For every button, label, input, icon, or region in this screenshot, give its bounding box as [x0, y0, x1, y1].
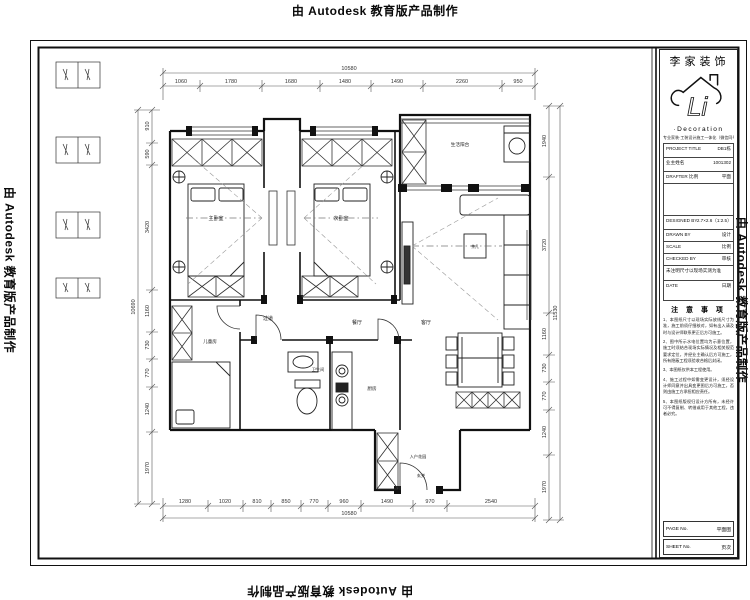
dim-right-seg: 1240	[542, 426, 548, 438]
field-label: 业主姓名	[666, 160, 684, 166]
company-logo: Li	[663, 71, 734, 125]
field-row: 业主姓名1001302	[664, 158, 733, 172]
company-tagline: 专业家装·工装设计施工一体化（微信同号）	[663, 135, 734, 141]
footer-label: PAGE No.	[666, 527, 688, 532]
dim-left-total: 10690	[131, 299, 137, 314]
field-label: DRAWN BY	[666, 232, 691, 237]
field-label: DATE	[666, 283, 678, 288]
title-block-footer: PAGE No.平面图 SHEET No.页次	[663, 519, 734, 555]
dim-bottom-total: 10580	[341, 511, 356, 517]
footer-value: 页次	[721, 544, 731, 551]
footer-label: SHEET No.	[666, 545, 691, 550]
room-labels: 主卧室 次卧室 生活阳台 过道 餐厅 客厅 卫生间 厨房 儿童房 入户花园 玄关…	[203, 141, 479, 479]
dim-bottom-seg: 1280	[179, 499, 191, 505]
dim-left-seg: 1160	[145, 305, 151, 317]
note-item: 5、本图纸版权归设计方所有，未经许可不得复制、转借或用于其他工程，违者必究。	[663, 399, 734, 418]
dim-bottom-seg: 960	[339, 499, 348, 505]
field-row: PROJECT TITLEDB1栋	[664, 144, 733, 158]
room-label-dining: 餐厅	[352, 319, 362, 326]
dim-right-seg: 770	[542, 391, 548, 400]
dim-right-seg: 1970	[542, 481, 548, 493]
furniture	[172, 126, 530, 430]
dim-right-seg: 1940	[542, 135, 548, 147]
dim-bottom-seg: 1020	[219, 499, 231, 505]
dim-top-seg: 1480	[339, 79, 351, 85]
dim-bottom-seg: 770	[309, 499, 318, 505]
room-label-balcony: 生活阳台	[451, 141, 470, 148]
field-value: 1001302	[713, 160, 731, 165]
note-item: 1、本图纸尺寸以现场实际放线尺寸为准，施工前须仔细核对，如有出入请及时与设计师联…	[663, 317, 734, 336]
room-label-bathroom: 卫生间	[312, 366, 325, 373]
company-name: 李家装饰	[665, 53, 734, 69]
dim-left-seg: 730	[145, 340, 151, 349]
field-label: DESIGNED BY	[666, 218, 697, 223]
dim-top-seg: 2260	[456, 79, 468, 85]
dim-top-seg: 1060	[175, 79, 187, 85]
dim-bottom-seg: 1490	[381, 499, 393, 505]
field-value: 审核	[722, 256, 731, 262]
dimension-lines	[134, 68, 564, 523]
dim-left-seg: 770	[145, 368, 151, 377]
dim-bottom-seg: 810	[252, 499, 261, 505]
footer-row: PAGE No.平面图	[663, 521, 734, 537]
exterior-walls	[170, 115, 530, 490]
dim-left-seg: 1970	[145, 462, 151, 474]
dashed-lines	[186, 154, 502, 320]
dim-top-seg: 950	[513, 79, 522, 85]
dim-left-seg: 590	[145, 149, 151, 158]
title-block: 李家装饰 Li ·Decoration 专业家装·工装设计施工一体化（微信同号）…	[659, 49, 738, 558]
cad-plot-page: 由 Autodesk 教育版产品制作 由 Autodesk 教育版产品制作 由 …	[0, 0, 750, 600]
room-label-entry-garden: 入户花园	[410, 453, 427, 460]
dim-bottom-seg: 970	[425, 499, 434, 505]
field-value: 平面	[722, 174, 731, 180]
note-item: 3、本图纸仅供本工程使用。	[663, 367, 734, 373]
dim-top-total: 10580	[341, 66, 356, 72]
field-value: 2.7×2.6（1:2.5）	[697, 218, 731, 224]
dim-top-seg: 1680	[285, 79, 297, 85]
field-row: DRAFTER 比例平面	[664, 172, 733, 184]
dim-right-seg: 1160	[542, 328, 548, 340]
hatched-cabinets	[172, 120, 520, 489]
title-block-fields: PROJECT TITLEDB1栋 业主姓名1001302 DRAFTER 比例…	[663, 143, 734, 301]
room-label-second-bedroom: 次卧室	[333, 215, 348, 222]
room-label-living: 客厅	[421, 319, 431, 326]
dim-top-seg: 1780	[225, 79, 237, 85]
margin-revision-boxes	[56, 62, 100, 298]
floor-plan-canvas: 主卧室 次卧室 生活阳台 过道 餐厅 客厅 卫生间 厨房 儿童房 入户花园 玄关…	[0, 0, 750, 600]
note-item: 4、施工过程中如需变更设计，须经设计师同意并出具变更图后方可施工，否则由施工方承…	[663, 377, 734, 396]
dim-top-seg: 1490	[391, 79, 403, 85]
field-row: DESIGNED BY2.7×2.6（1:2.5）	[664, 216, 733, 230]
field-label: DRAFTER 比例	[666, 174, 698, 180]
dim-left-seg: 910	[145, 121, 151, 130]
field-value: 日期	[722, 283, 731, 289]
dim-bottom-seg: 2540	[485, 499, 497, 505]
field-row: SCALE比例	[664, 242, 733, 254]
ceiling-lamp-icon	[173, 171, 393, 273]
field-value: DB1栋	[717, 146, 731, 152]
room-label-foyer: 玄关	[417, 472, 425, 479]
room-label-master-bedroom: 主卧室	[208, 215, 223, 222]
field-label: 未注明尺寸以现场实测为准	[666, 268, 721, 274]
dim-bottom-seg: 850	[281, 499, 290, 505]
dim-left-seg: 3420	[145, 221, 151, 233]
field-value: 比例	[722, 244, 731, 250]
room-label-coffee-table: 茶几	[471, 244, 479, 249]
field-label: SCALE	[666, 244, 681, 249]
field-row: CHECKED BY审核	[664, 254, 733, 266]
field-label: CHECKED BY	[666, 256, 696, 261]
footer-row: SHEET No.页次	[663, 539, 734, 555]
field-row	[664, 184, 733, 216]
field-row: DATE日期	[664, 281, 733, 301]
notes-list: 1、本图纸尺寸以现场实际放线尺寸为准，施工前须仔细核对，如有出入请及时与设计师联…	[663, 317, 734, 518]
notes-title: 注 意 事 项	[663, 305, 734, 315]
field-row: 未注明尺寸以现场实测为准	[664, 266, 733, 281]
logo-li-text: Li	[687, 92, 708, 122]
dim-left-seg: 1240	[145, 403, 151, 415]
dim-right-seg: 3720	[542, 239, 548, 251]
room-label-kitchen: 厨房	[367, 385, 377, 392]
room-label-corridor: 过道	[263, 315, 273, 322]
wall-caps	[186, 126, 530, 494]
note-item: 2、图中所示水电位置均为示意位置，施工时须结合现场实际情况及相关规范要求定位，并…	[663, 339, 734, 364]
field-row: DRAWN BY设计	[664, 230, 733, 242]
field-label: PROJECT TITLE	[666, 146, 701, 151]
footer-value: 平面图	[717, 526, 731, 533]
dim-right-seg: 730	[542, 363, 548, 372]
field-value: 设计	[722, 232, 731, 238]
logo-subtitle: ·Decoration	[663, 126, 734, 133]
dim-right-total: 11530	[553, 306, 559, 321]
room-label-kids-room: 儿童房	[203, 338, 217, 345]
